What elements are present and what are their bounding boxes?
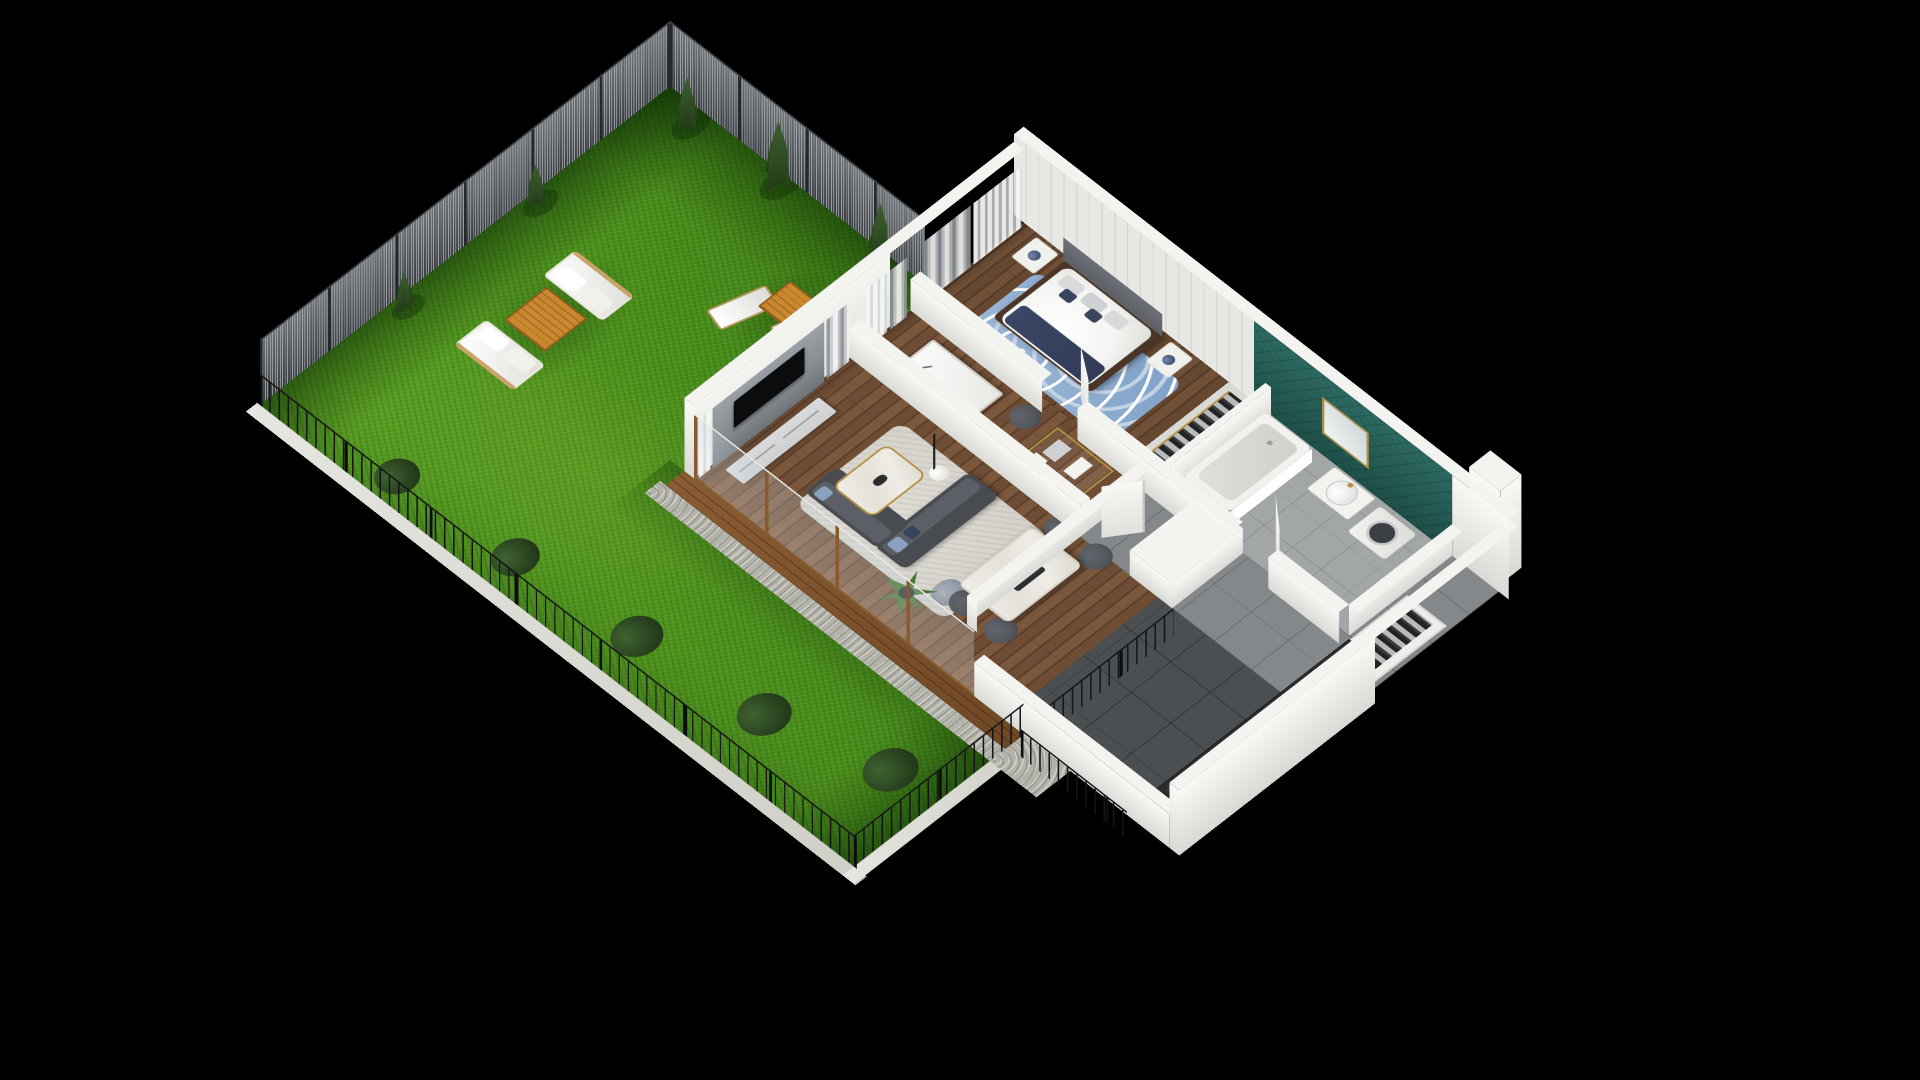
render-background bbox=[0, 0, 1920, 1080]
bathroom-mirror bbox=[1322, 397, 1369, 470]
se-wall-end bbox=[1169, 782, 1179, 855]
facade-wall-end bbox=[684, 398, 694, 479]
washer-door bbox=[1360, 515, 1405, 550]
